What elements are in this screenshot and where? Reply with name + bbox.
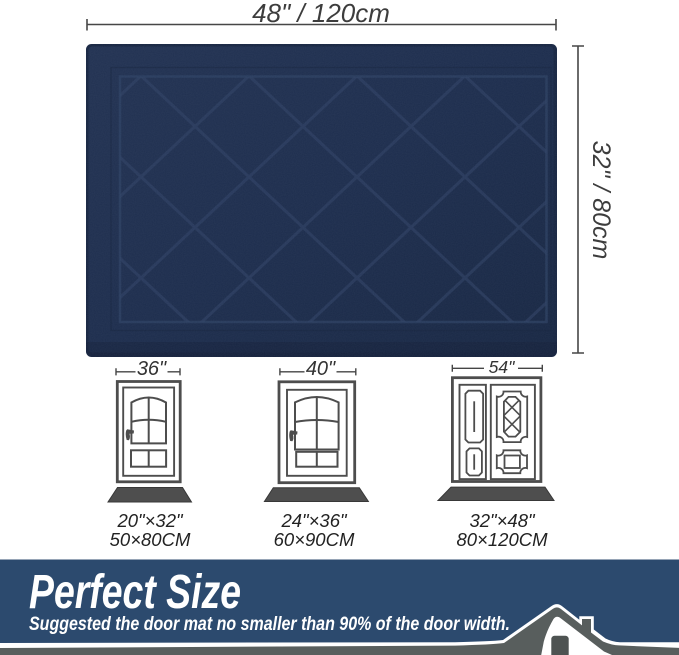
svg-text:40": 40" [306, 358, 336, 380]
svg-text:20"×32": 20"×32" [116, 510, 184, 531]
svg-text:36": 36" [137, 358, 167, 380]
svg-text:Perfect Size: Perfect Size [29, 566, 241, 619]
svg-text:24"×36": 24"×36" [280, 510, 348, 531]
svg-text:54": 54" [489, 357, 515, 377]
svg-text:Suggested the door mat no smal: Suggested the door mat no smaller than 9… [29, 613, 510, 635]
svg-text:32"×48": 32"×48" [469, 510, 536, 531]
svg-text:32" / 80cm: 32" / 80cm [587, 141, 615, 260]
svg-text:48" / 120cm: 48" / 120cm [252, 0, 390, 28]
svg-text:60×90CM: 60×90CM [274, 529, 355, 550]
svg-text:80×120CM: 80×120CM [456, 529, 548, 550]
svg-text:50×80CM: 50×80CM [110, 529, 191, 550]
